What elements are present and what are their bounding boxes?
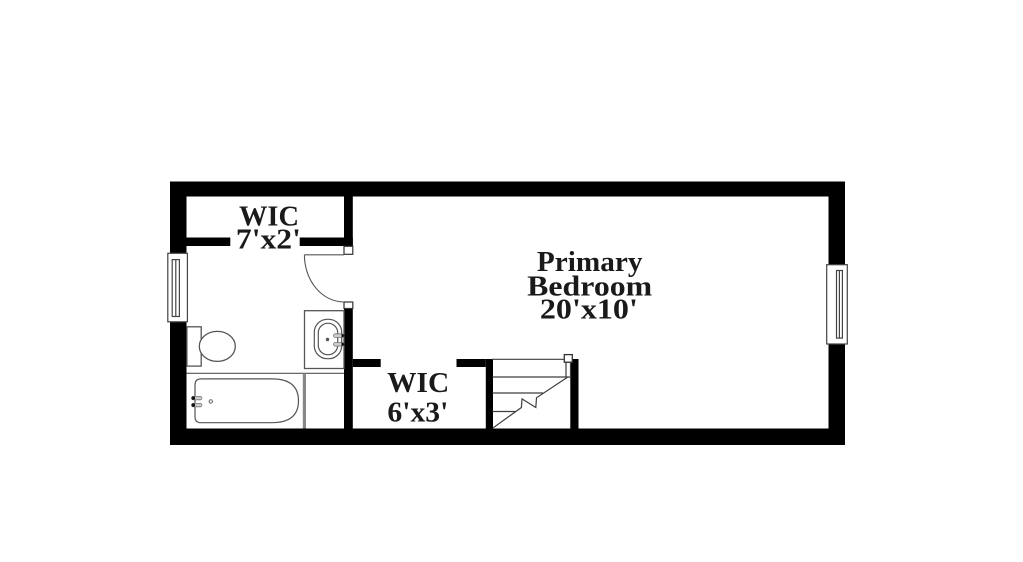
svg-text:7'x2': 7'x2' — [236, 224, 301, 256]
svg-text:20'x10': 20'x10' — [540, 294, 638, 326]
svg-text:6'x3': 6'x3' — [387, 397, 448, 429]
svg-text:WIC: WIC — [387, 367, 449, 399]
